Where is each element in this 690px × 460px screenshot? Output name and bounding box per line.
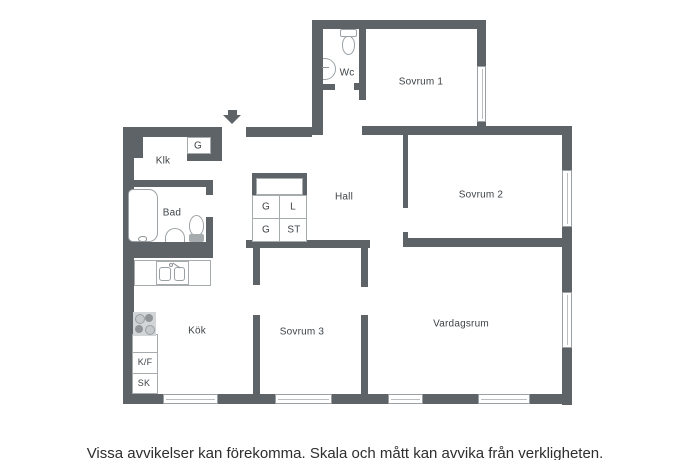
window (477, 66, 486, 122)
room-label-sovrum1: Sovrum 1 (399, 77, 443, 88)
disclaimer-text: Vissa avvikelser kan förekomma. Skala oc… (0, 445, 690, 460)
wall-segment (359, 28, 366, 100)
wall-segment (312, 20, 485, 29)
sink-basin (174, 267, 185, 281)
wall-segment (246, 127, 312, 137)
closet-label-entry-g: G (194, 141, 202, 152)
wall-segment (123, 242, 213, 258)
wall-segment (312, 84, 335, 90)
sink-basin (159, 267, 171, 281)
wall-segment (361, 248, 368, 287)
wall-segment (362, 126, 572, 135)
room-label-vardagsrum: Vardagsrum (433, 319, 489, 330)
bathtub-icon (128, 189, 158, 242)
wall-segment (253, 248, 260, 285)
wall-segment (253, 315, 260, 394)
window (562, 292, 572, 348)
closet-label-sk: SK (138, 378, 150, 388)
window (388, 394, 423, 404)
room-label-hall: Hall (335, 192, 353, 203)
room-label-wc: Wc (340, 68, 355, 79)
wardrobe-niche (256, 178, 303, 195)
wall-segment (423, 394, 478, 404)
floor-plan: Wc Sovrum 1 Klk Hall Sovrum 2 Bad Kök So… (0, 0, 690, 460)
closet-label-st: ST (287, 225, 300, 236)
window (478, 394, 530, 404)
wall-segment (123, 180, 213, 187)
wall-segment (562, 131, 572, 170)
closet-grid-line (253, 218, 306, 219)
closet-label-l: L (290, 202, 296, 213)
window (275, 394, 332, 404)
sink-tap-mark (322, 67, 329, 68)
room-label-klk: Klk (156, 156, 171, 167)
wall-segment (354, 83, 359, 90)
wall-segment (477, 20, 486, 66)
room-label-sovrum2: Sovrum 2 (459, 190, 503, 201)
wall-segment (361, 315, 368, 394)
wall-segment (218, 394, 275, 404)
tap-icon (138, 236, 147, 242)
sink-icon (165, 228, 185, 242)
window (562, 170, 572, 227)
closet-label-g2: G (262, 225, 270, 236)
room-label-kok: Kök (188, 326, 206, 337)
wall-segment (332, 394, 388, 404)
wall-segment (206, 180, 213, 195)
window (163, 394, 218, 404)
toilet-icon (342, 36, 355, 55)
wall-segment (530, 394, 572, 404)
closet-label-g1: G (262, 202, 270, 213)
wall-segment (562, 227, 572, 292)
toilet-tank (189, 234, 204, 242)
wall-segment (403, 131, 408, 208)
closet-label-kf: K/F (138, 357, 153, 367)
cabinet (132, 334, 158, 353)
stove-icon (133, 312, 156, 336)
wall-segment (403, 238, 563, 247)
sink-icon (323, 58, 336, 80)
toilet-icon (189, 215, 204, 236)
room-label-bad: Bad (163, 208, 181, 219)
wall-segment (123, 394, 163, 404)
wall-segment (312, 20, 323, 135)
wall-segment (187, 153, 222, 161)
room-label-sovrum3: Sovrum 3 (280, 327, 324, 338)
